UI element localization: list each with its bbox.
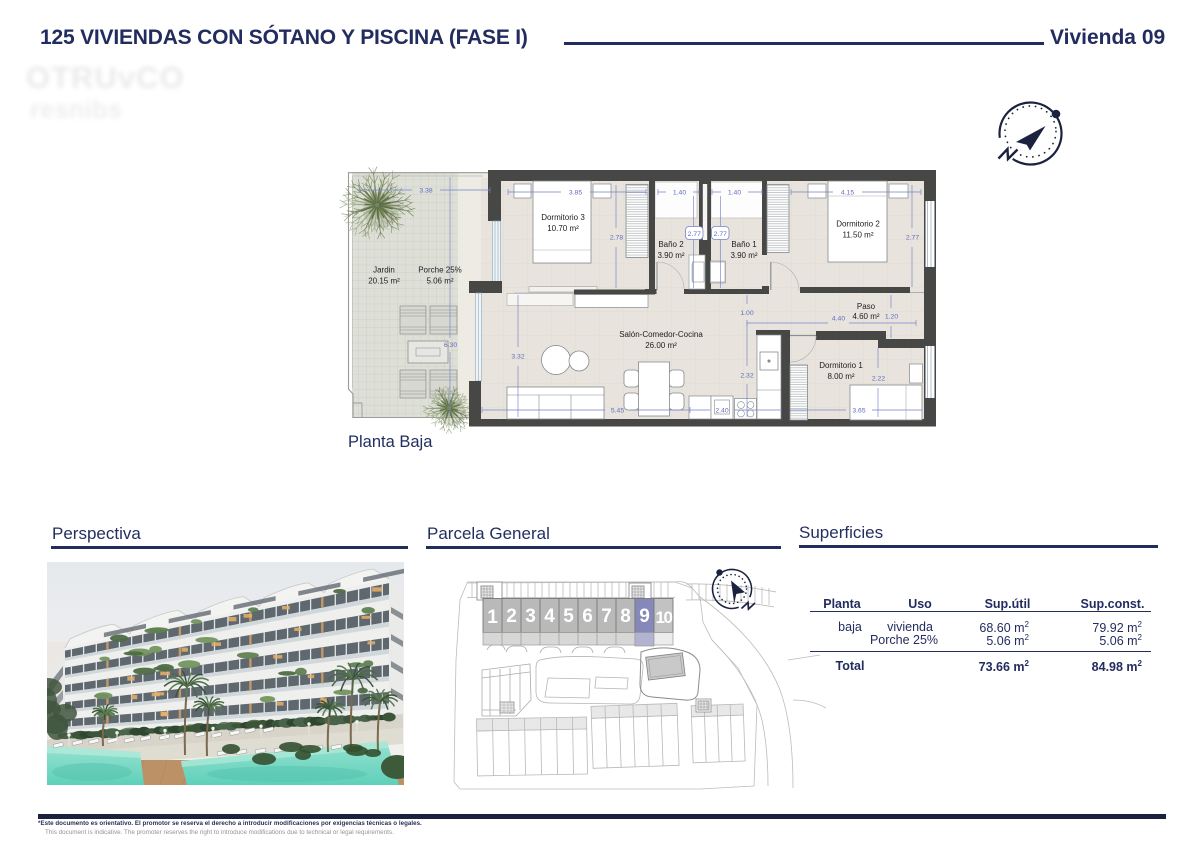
svg-text:3.90 m²: 3.90 m² <box>657 251 684 260</box>
svg-text:3.90 m²: 3.90 m² <box>730 251 757 260</box>
svg-text:2.77: 2.77 <box>906 235 919 242</box>
svg-text:Baño 2: Baño 2 <box>658 240 684 249</box>
svg-text:26.00 m²: 26.00 m² <box>645 341 677 350</box>
svg-text:20.15 m²: 20.15 m² <box>368 277 400 286</box>
svg-text:6: 6 <box>582 606 593 627</box>
svg-text:3.38: 3.38 <box>419 188 432 195</box>
svg-text:Baño 1: Baño 1 <box>731 240 757 249</box>
svg-text:5: 5 <box>563 606 574 627</box>
svg-text:1.40: 1.40 <box>728 190 741 197</box>
svg-text:4.60 m²: 4.60 m² <box>852 312 879 321</box>
svg-text:2.40: 2.40 <box>715 408 728 415</box>
svg-text:2.77: 2.77 <box>714 231 727 238</box>
svg-text:8.00 m²: 8.00 m² <box>827 372 854 381</box>
svg-text:Dormitorio 3: Dormitorio 3 <box>541 213 585 222</box>
svg-text:1.20: 1.20 <box>885 314 898 321</box>
svg-text:4: 4 <box>544 606 555 627</box>
svg-text:5.45: 5.45 <box>611 408 624 415</box>
svg-text:1: 1 <box>487 607 498 628</box>
svg-text:Jardin: Jardin <box>373 266 395 275</box>
svg-text:Paso: Paso <box>857 302 876 311</box>
svg-text:Dormitorio 2: Dormitorio 2 <box>836 220 880 229</box>
svg-text:3: 3 <box>525 606 536 627</box>
svg-text:4.40: 4.40 <box>832 316 845 323</box>
svg-text:3.85: 3.85 <box>569 190 582 197</box>
svg-text:2.22: 2.22 <box>872 376 885 383</box>
svg-text:Porche 25%: Porche 25% <box>418 266 462 275</box>
svg-text:6.30: 6.30 <box>444 342 457 349</box>
svg-text:7: 7 <box>601 606 612 627</box>
svg-text:5.06 m²: 5.06 m² <box>426 277 453 286</box>
svg-text:9: 9 <box>639 606 650 627</box>
svg-text:10: 10 <box>656 608 673 627</box>
svg-text:2: 2 <box>506 606 517 627</box>
svg-text:8: 8 <box>620 606 631 627</box>
svg-text:Dormitorio 1: Dormitorio 1 <box>819 361 863 370</box>
svg-text:1.40: 1.40 <box>673 190 686 197</box>
svg-text:Salón-Comedor-Cocina: Salón-Comedor-Cocina <box>619 330 703 339</box>
svg-text:1.00: 1.00 <box>740 310 753 317</box>
svg-text:10.70 m²: 10.70 m² <box>547 224 579 233</box>
svg-text:3.32: 3.32 <box>511 354 524 361</box>
svg-text:2.32: 2.32 <box>740 373 753 380</box>
svg-text:2.77: 2.77 <box>688 231 701 238</box>
svg-text:2.78: 2.78 <box>610 235 623 242</box>
svg-text:4.15: 4.15 <box>841 190 854 197</box>
svg-text:3.65: 3.65 <box>852 408 865 415</box>
svg-text:11.50 m²: 11.50 m² <box>843 231 874 240</box>
